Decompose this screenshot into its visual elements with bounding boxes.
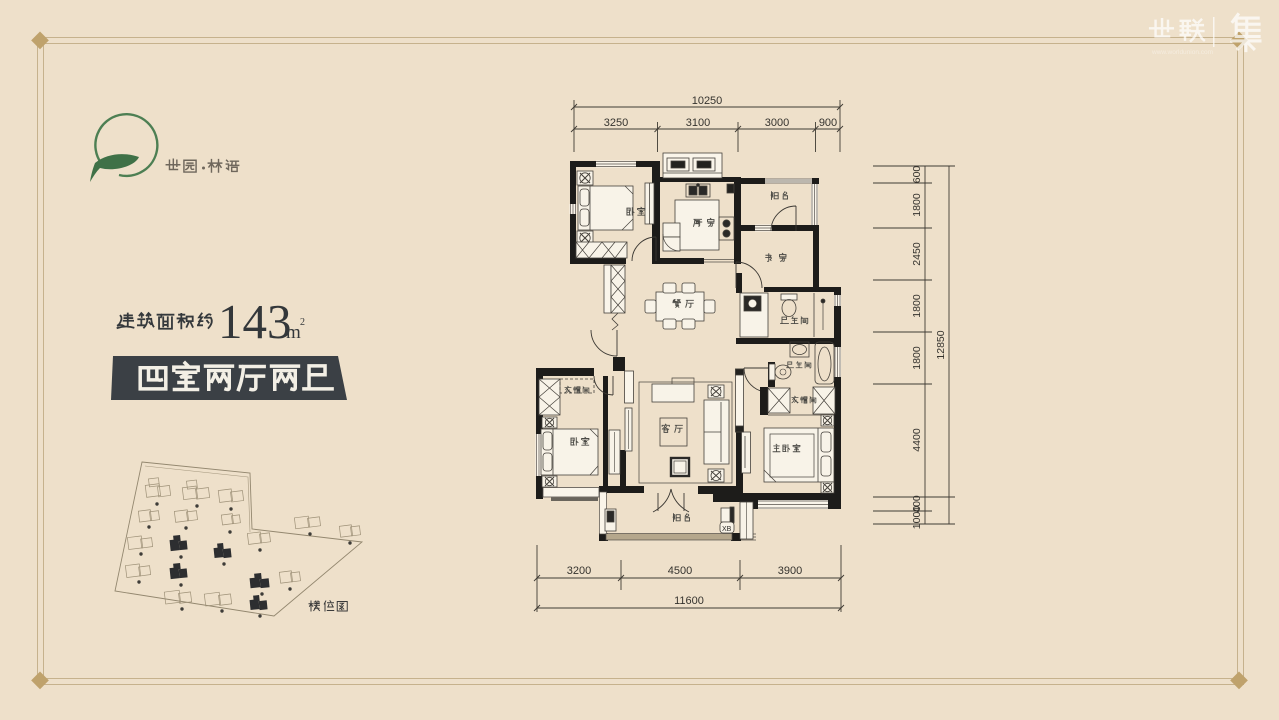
svg-text:m: m — [286, 322, 301, 343]
svg-text:2450: 2450 — [911, 242, 923, 266]
svg-text:4400: 4400 — [911, 428, 923, 452]
svg-text:1800: 1800 — [911, 346, 923, 370]
svg-text:3100: 3100 — [686, 117, 710, 129]
svg-text:3250: 3250 — [604, 117, 628, 129]
svg-text:1000: 1000 — [911, 506, 923, 530]
svg-text:3000: 3000 — [765, 117, 789, 129]
svg-text:600: 600 — [911, 166, 923, 184]
svg-text:www.worldunion.com: www.worldunion.com — [1151, 49, 1213, 56]
svg-text:900: 900 — [819, 117, 837, 129]
svg-text:143: 143 — [218, 295, 292, 349]
svg-text:1800: 1800 — [911, 193, 923, 217]
svg-text:12850: 12850 — [935, 330, 947, 359]
svg-text:4500: 4500 — [668, 565, 692, 577]
svg-text:11600: 11600 — [674, 595, 704, 607]
svg-text:2: 2 — [300, 317, 305, 328]
svg-text:3200: 3200 — [567, 565, 591, 577]
svg-text:10250: 10250 — [692, 95, 723, 107]
svg-text:3900: 3900 — [778, 565, 802, 577]
svg-text:XB: XB — [722, 526, 732, 533]
svg-text:1800: 1800 — [911, 294, 923, 318]
